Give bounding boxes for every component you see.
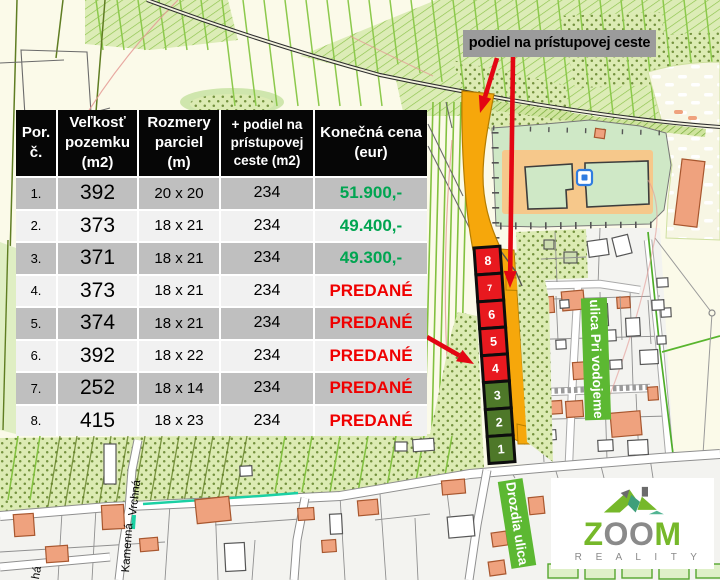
svg-text:7: 7 (487, 283, 493, 293)
svg-text:3: 3 (493, 388, 501, 402)
svg-text:6: 6 (488, 307, 496, 321)
svg-text:2: 2 (495, 415, 503, 429)
svg-text:1: 1 (497, 442, 505, 456)
svg-text:5: 5 (490, 334, 498, 348)
svg-text:4: 4 (492, 361, 500, 375)
svg-text:8: 8 (484, 254, 492, 268)
